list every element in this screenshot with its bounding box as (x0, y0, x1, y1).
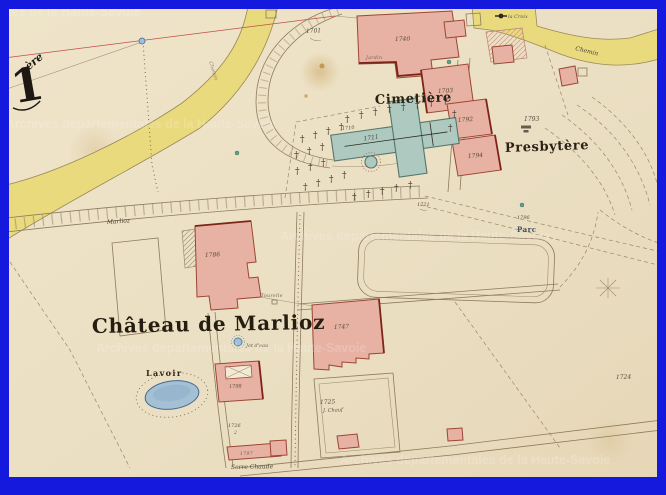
grave-cross-icon (295, 167, 300, 177)
parcel-number-1724: 1724 (616, 373, 632, 381)
watermark-text: Archives départementales de la Haute-Sav… (340, 453, 610, 467)
grave-cross-icon (373, 108, 378, 118)
grave-cross-icon (359, 111, 364, 121)
grave-cross-icon (380, 187, 385, 197)
parcel-number-1701: 1701 (306, 27, 322, 35)
grave-cross-icon (452, 110, 457, 120)
grave-cross-icon (300, 135, 305, 145)
label-serre-chaude: Serre Chaude (231, 463, 274, 471)
cadastral-map: † (0, 0, 666, 495)
watermark-text: Archives départementales de la Haute-Sav… (6, 117, 276, 131)
outbuilding (337, 434, 359, 449)
parcel-number-1725: 1725 (320, 398, 336, 406)
parcel-number-1747: 1747 (334, 323, 350, 331)
label-la-croix: la Croix (508, 14, 528, 20)
parcel-number-1797: 1797 (240, 451, 253, 457)
building-east (559, 66, 578, 86)
parcel-number-1794: 1794 (468, 152, 484, 160)
grave-cross-icon (448, 124, 453, 134)
outbuilding (270, 440, 287, 456)
grave-cross-icon (308, 163, 313, 173)
grave-cross-icon (408, 181, 413, 191)
grave-cross-icon (316, 179, 321, 189)
watermark-text: Archives départementales de la Haute-Sav… (280, 229, 550, 243)
parcel-number-1786: 1786 (205, 251, 221, 259)
grave-cross-icon (313, 131, 318, 141)
parcel-number-1726: 1726 (228, 423, 242, 429)
grave-cross-icon (320, 143, 325, 153)
grave-cross-icon (294, 151, 299, 161)
cadastral-map-scan: † (0, 0, 666, 495)
grave-cross-icon (366, 190, 371, 200)
paper-spot (320, 64, 325, 69)
church-round-tower (365, 156, 377, 168)
watermark-text: Archives départementales de la Haute-Sav… (96, 341, 366, 355)
parcel-number-1740: 1740 (395, 35, 411, 43)
parcel-number-1721: 1721 (417, 202, 430, 208)
parcel-number-1703: 1703 (438, 87, 454, 95)
parcel-number-1796: 1796 (517, 215, 531, 221)
parcel-number-1710: 1710 (342, 125, 356, 132)
grave-cross-icon (321, 159, 326, 169)
label-tourelle: Tourelle (261, 293, 283, 299)
grave-cross-icon (342, 171, 347, 181)
grave-cross-icon (352, 193, 357, 203)
survey-dot-icon (520, 203, 524, 207)
parcel-number-1792: 1792 (458, 116, 474, 124)
grave-cross-icon (326, 127, 331, 137)
grave-cross-icon (394, 184, 399, 194)
parcel-number-1793: 1793 (524, 116, 539, 123)
grave-cross-icon (345, 115, 350, 125)
hamlet-building (492, 45, 514, 64)
label-jardin: Jardin (365, 55, 382, 61)
grave-cross-icon (303, 183, 308, 193)
label-presbytere: Presbytère (505, 138, 590, 156)
outbuilding (447, 428, 463, 441)
parcel-number-1798: 1798 (229, 384, 242, 390)
hamlet-building (444, 20, 466, 38)
note-1725: J. Chauf (322, 407, 344, 414)
label-lavoir: Lavoir (146, 368, 182, 378)
survey-dot-icon (235, 151, 239, 155)
survey-point-icon (139, 38, 145, 44)
survey-dot-icon (447, 60, 451, 64)
label-chateau-de-marlioz: Château de Marlioz (92, 310, 326, 338)
grave-cross-icon (329, 175, 334, 185)
grave-cross-icon (307, 147, 312, 157)
note-1726: 2 (233, 430, 237, 436)
paper-stain (300, 52, 340, 92)
paper-spot (304, 94, 307, 97)
